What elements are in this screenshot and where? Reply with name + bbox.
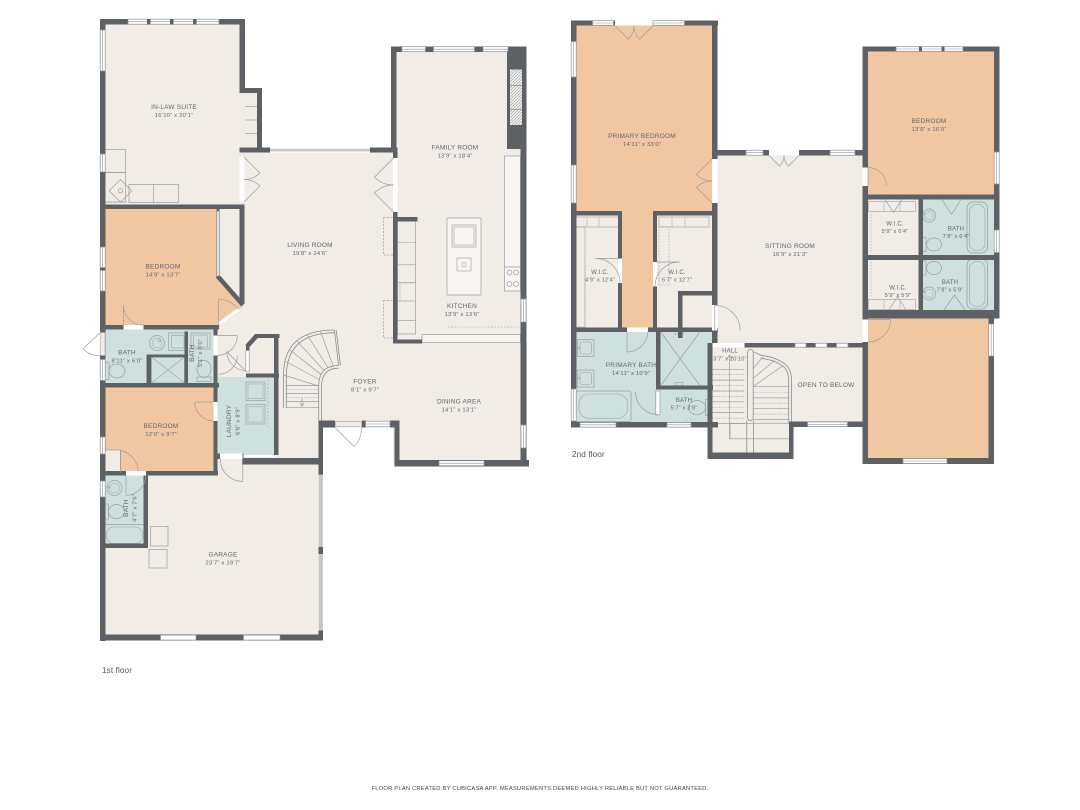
svg-text:5’9” x 5’9”: 5’9” x 5’9”: [885, 293, 912, 299]
svg-text:PRIMARY BEDROOM: PRIMARY BEDROOM: [608, 133, 676, 140]
svg-text:HALL: HALL: [722, 349, 738, 355]
svg-text:13’9” x 16’0”: 13’9” x 16’0”: [911, 127, 946, 133]
svg-text:16’10” x 20’1”: 16’10” x 20’1”: [155, 113, 194, 119]
svg-text:LIVING ROOM: LIVING ROOM: [287, 242, 333, 249]
svg-text:W.I.C.: W.I.C.: [886, 222, 904, 228]
svg-text:4’9” x 12’4”: 4’9” x 12’4”: [585, 278, 615, 284]
svg-text:5’7” x 12’7”: 5’7” x 12’7”: [662, 278, 692, 284]
svg-text:5’1” x 6’0”: 5’1” x 6’0”: [198, 339, 204, 367]
svg-text:LAUNDRY: LAUNDRY: [226, 404, 233, 437]
svg-text:3’7” x 20’10”: 3’7” x 20’10”: [713, 357, 746, 363]
svg-text:BATH: BATH: [189, 344, 196, 362]
svg-text:GARAGE: GARAGE: [208, 552, 237, 559]
svg-text:OPEN TO BELOW: OPEN TO BELOW: [798, 382, 856, 389]
svg-text:13’9” x 18’4”: 13’9” x 18’4”: [437, 154, 472, 160]
svg-text:FAMILY ROOM: FAMILY ROOM: [432, 145, 479, 152]
svg-text:W.I.C.: W.I.C.: [591, 270, 609, 276]
svg-text:W.I.C.: W.I.C.: [889, 286, 907, 292]
svg-text:7’8” x 6’4”: 7’8” x 6’4”: [943, 234, 970, 240]
svg-text:7’8” x 5’9”: 7’8” x 5’9”: [937, 288, 964, 294]
svg-text:BEDROOM: BEDROOM: [146, 264, 181, 271]
svg-text:14’11” x 10’9”: 14’11” x 10’9”: [612, 371, 650, 377]
svg-text:14’9” x 13’7”: 14’9” x 13’7”: [145, 273, 180, 279]
svg-text:BATH: BATH: [676, 398, 692, 404]
svg-text:4’7” x 7’6”: 4’7” x 7’6”: [133, 494, 139, 522]
svg-text:5’7” x 3’8”: 5’7” x 3’8”: [671, 406, 698, 412]
svg-text:2nd floor: 2nd floor: [572, 450, 605, 459]
svg-text:IN-LAW SUITE: IN-LAW SUITE: [151, 104, 197, 111]
svg-text:BATH: BATH: [123, 499, 130, 517]
svg-text:1st floor: 1st floor: [102, 666, 132, 675]
svg-text:16’9” x 21’3”: 16’9” x 21’3”: [772, 252, 807, 258]
svg-text:23’7” x 19’7”: 23’7” x 19’7”: [205, 561, 240, 567]
svg-text:5’9” x 6’4”: 5’9” x 6’4”: [882, 229, 909, 235]
svg-text:DINING AREA: DINING AREA: [437, 399, 482, 406]
svg-text:13’9” x 13’6”: 13’9” x 13’6”: [444, 312, 479, 318]
svg-text:8’1” x 9’7”: 8’1” x 9’7”: [351, 388, 379, 394]
svg-text:BEDROOM: BEDROOM: [912, 118, 947, 125]
svg-text:19’8” x 24’6”: 19’8” x 24’6”: [292, 251, 327, 257]
svg-text:14’11” x 33’0”: 14’11” x 33’0”: [623, 142, 661, 148]
svg-text:BATH: BATH: [942, 280, 958, 286]
svg-text:6’6” x 8’9”: 6’6” x 8’9”: [236, 407, 242, 435]
svg-text:FLOOR PLAN CREATED BY CUBICASA: FLOOR PLAN CREATED BY CUBICASA APP. MEAS…: [371, 786, 708, 792]
svg-text:SITTING ROOM: SITTING ROOM: [765, 243, 815, 250]
svg-text:BEDROOM: BEDROOM: [144, 423, 179, 430]
svg-text:12’0” x 9’7”: 12’0” x 9’7”: [145, 432, 177, 438]
svg-text:FOYER: FOYER: [353, 379, 376, 386]
svg-text:BATH: BATH: [118, 350, 136, 357]
svg-text:KITCHEN: KITCHEN: [447, 303, 477, 310]
svg-text:W.I.C.: W.I.C.: [668, 270, 686, 276]
svg-text:BATH: BATH: [948, 227, 964, 233]
svg-text:14’1” x 13’1”: 14’1” x 13’1”: [441, 408, 476, 414]
svg-text:PRIMARY BATH: PRIMARY BATH: [606, 362, 657, 369]
svg-text:8’11” x 6’0”: 8’11” x 6’0”: [111, 359, 142, 365]
